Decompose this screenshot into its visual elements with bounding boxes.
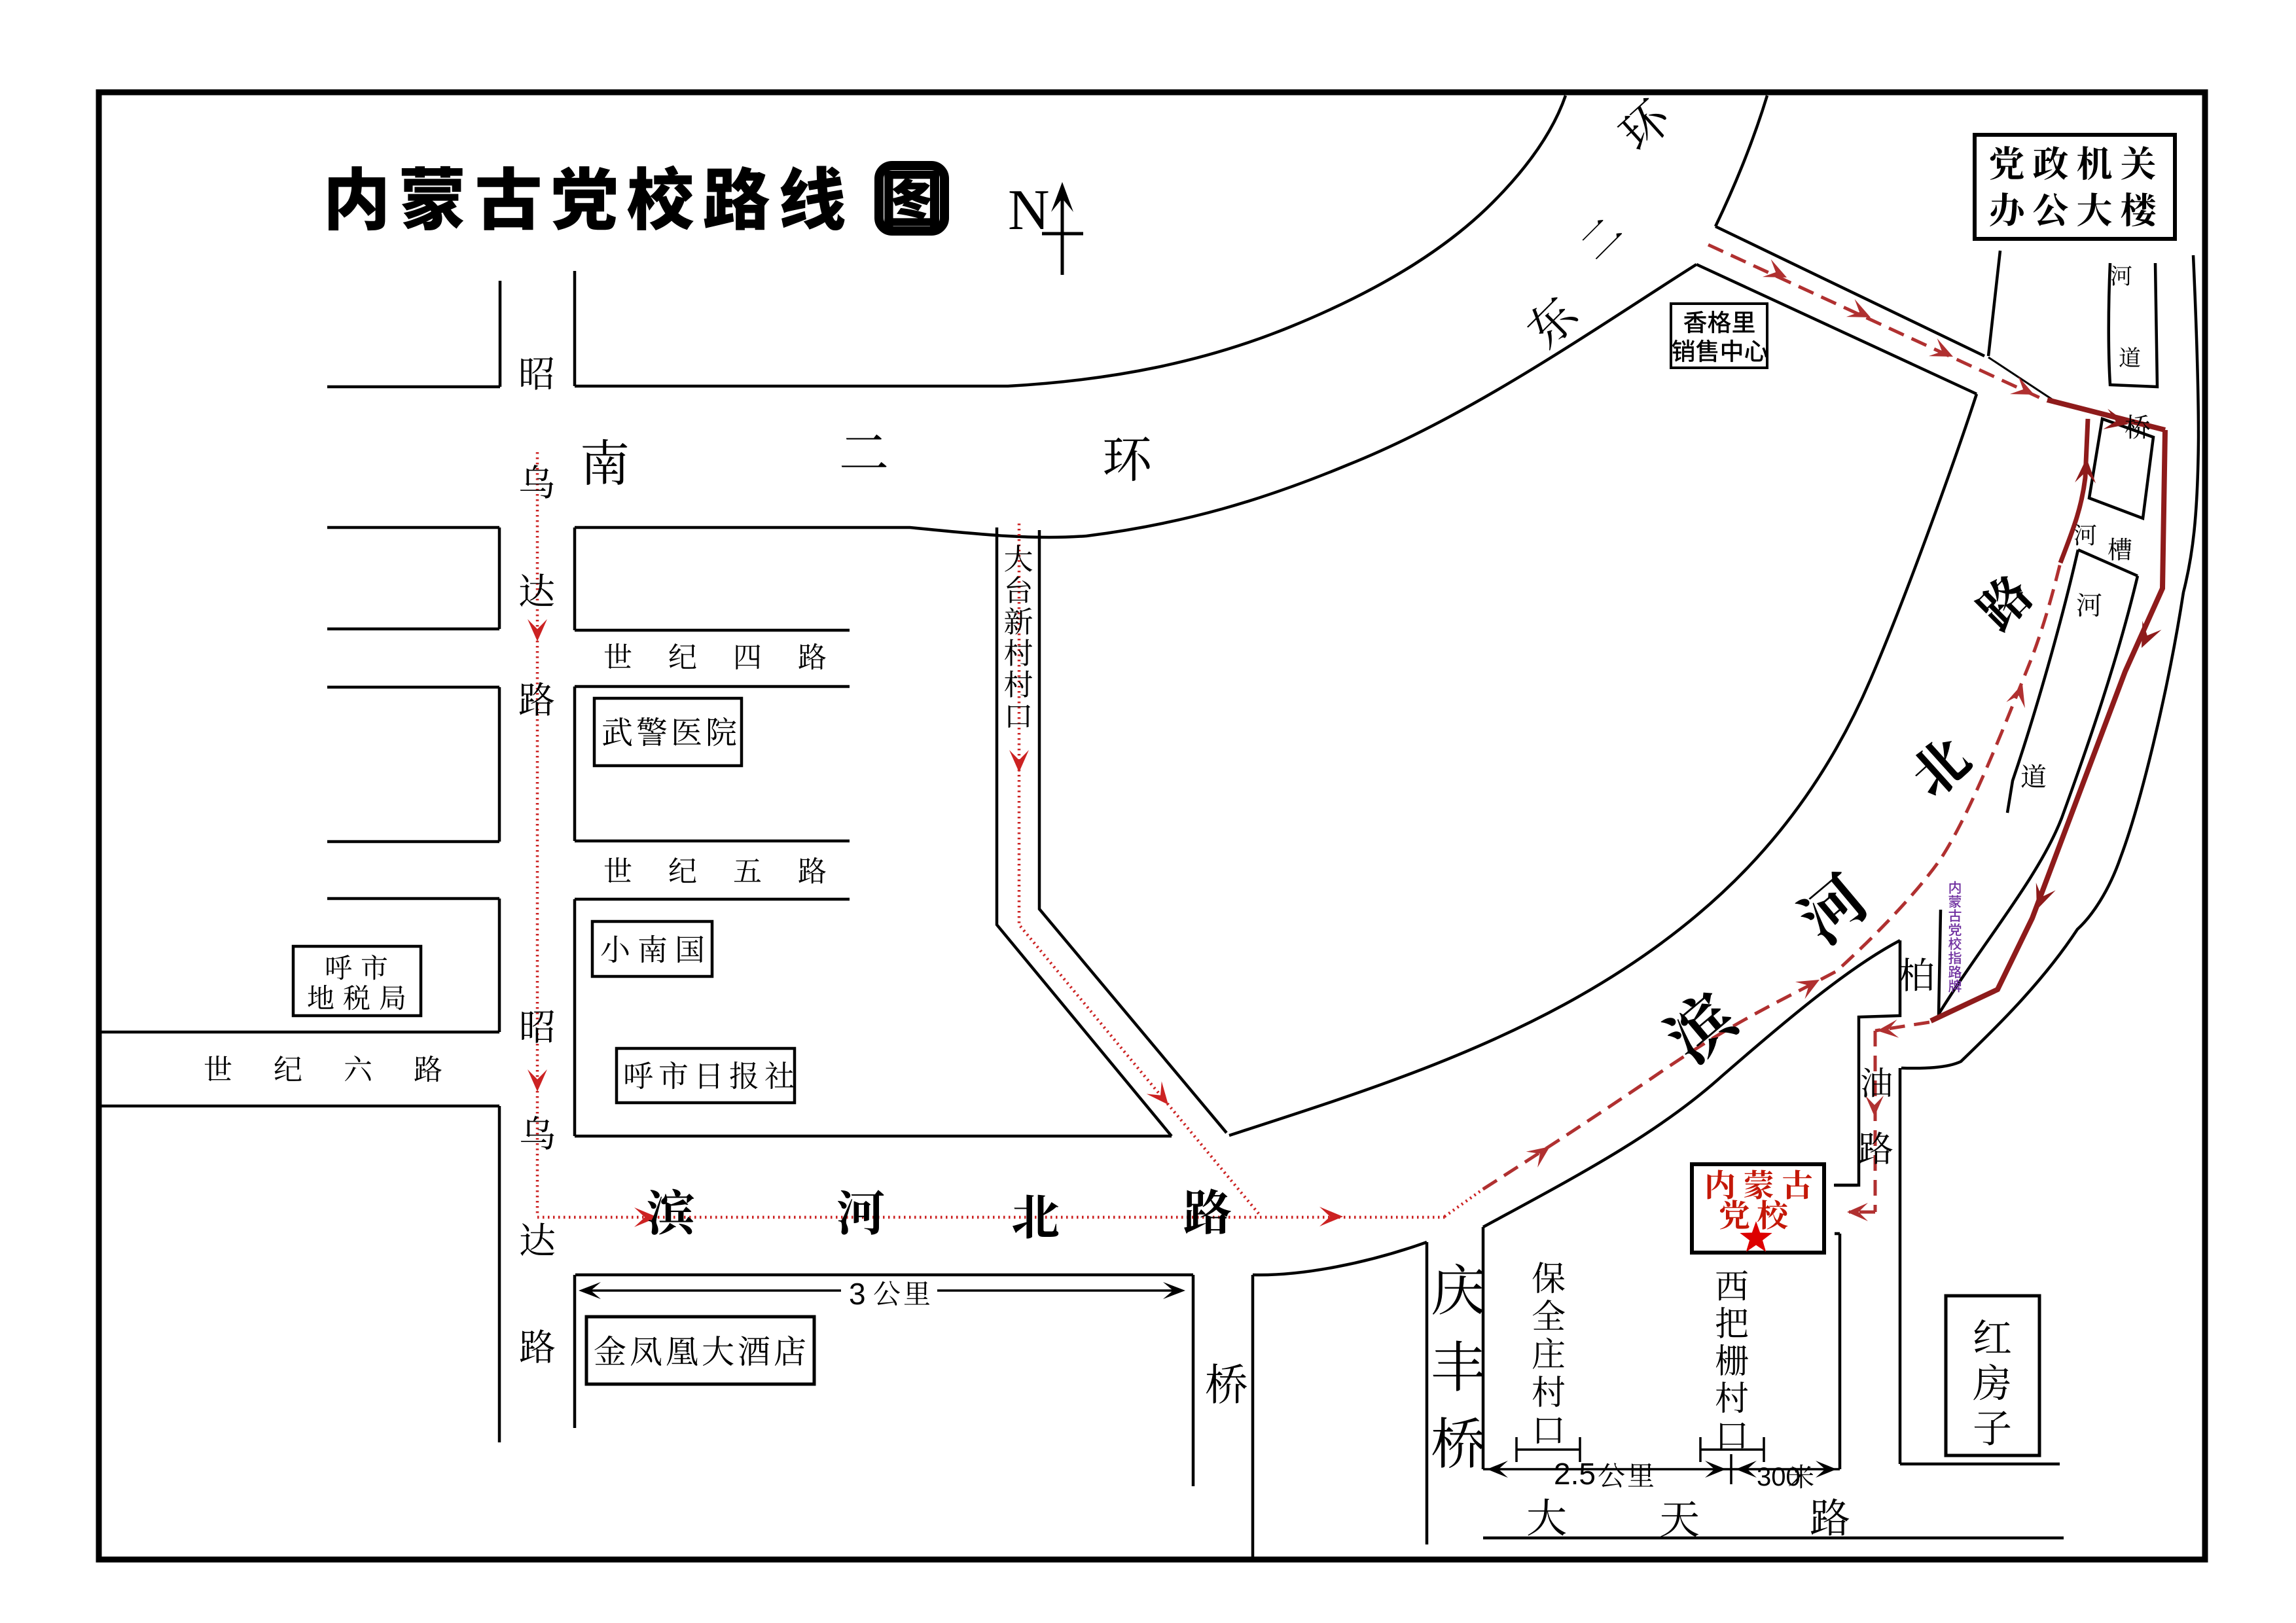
svg-text:3: 3: [849, 1277, 866, 1311]
svg-text:300: 300: [1757, 1463, 1801, 1491]
svg-text:2.5: 2.5: [1554, 1457, 1596, 1491]
